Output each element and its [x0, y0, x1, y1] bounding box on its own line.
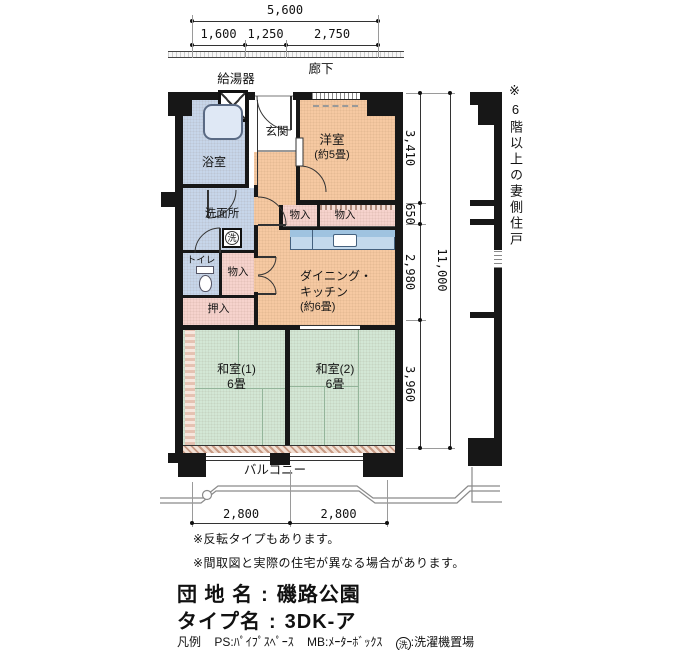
dim-line — [192, 21, 378, 22]
ext-line — [286, 40, 287, 58]
ext-line — [245, 40, 246, 58]
dim-dot — [418, 318, 422, 322]
neighbor-pillar-top-b — [478, 105, 502, 125]
dim-right-seg1: 3,410 — [403, 118, 417, 178]
pillar-bottom-right — [363, 453, 403, 477]
legend-line: 凡例 PS:ﾊﾟｲﾌﾟｽﾍﾟｰｽ MB:ﾒｰﾀｰﾎﾞｯｸｽ 洗:洗濯機置場 — [177, 633, 474, 650]
dim-top-seg2: 1,250 — [245, 27, 286, 41]
meter-box — [161, 192, 175, 207]
dim-line — [420, 93, 421, 448]
dim-dot — [448, 91, 452, 95]
balcony-railing-joint — [203, 491, 212, 500]
toilet-bowl — [199, 275, 212, 292]
corridor-label: 廊下 — [296, 62, 346, 78]
balcony-label: バルコニー — [225, 463, 325, 479]
neighbor-pillar-bottom — [468, 438, 502, 466]
neighbor-stub-3 — [470, 312, 494, 318]
legend-label: 凡例 — [177, 635, 201, 649]
bathroom-label: 浴室 — [185, 155, 243, 170]
balcony-railing-outer — [160, 486, 500, 498]
toilet-tank — [196, 266, 214, 274]
balcony-railing-inner — [160, 491, 500, 503]
dim-top-seg1: 1,600 — [192, 27, 245, 41]
kitchen-sink — [333, 234, 357, 247]
pillar-bottom-left — [178, 453, 206, 477]
window-track — [290, 456, 363, 457]
water-heater-label: 給湯器 — [212, 72, 260, 88]
entrance-threshold — [255, 95, 293, 97]
western-room-label: 洋室 (約5畳) — [297, 133, 367, 162]
japanese-room-1-label: 和室(1) 6畳 — [188, 362, 285, 392]
closet-west-right-label: 物入 — [325, 209, 365, 222]
wall-closet-divider — [317, 205, 320, 227]
gable-side-note: ※6階以上の妻側住戸 — [506, 84, 525, 248]
neighbor-stub-2 — [470, 219, 494, 225]
dim-dot — [418, 91, 422, 95]
western-room-window — [312, 92, 360, 100]
closet-hall-label: 物入 — [222, 266, 254, 279]
window-track — [206, 456, 270, 457]
ext-line — [192, 15, 193, 58]
legend-ps: PS:ﾊﾟｲﾌﾟｽﾍﾟｰｽ — [214, 635, 293, 649]
wall-bath-washroom — [183, 184, 249, 188]
wall-washroom-hall-upper — [254, 185, 258, 197]
ext-line — [406, 320, 426, 321]
type-name-line: タイプ名:3DK-ア — [177, 605, 356, 634]
washer-circle-icon: 洗 — [396, 637, 411, 650]
dim-right-seg3: 2,980 — [403, 242, 417, 302]
window-track — [290, 460, 363, 461]
colon: : — [269, 611, 277, 633]
wall-entrance-west-line — [257, 100, 258, 185]
neighbor-stub-1 — [470, 200, 494, 206]
legend-washer: 洗:洗濯機置場 — [396, 635, 474, 649]
dim-right-seg4: 3,960 — [403, 354, 417, 414]
legend-mb: MB:ﾒｰﾀｰﾎﾞｯｸｽ — [307, 635, 382, 649]
balcony-window-band — [183, 445, 395, 453]
legend-washer-text: :洗濯機置場 — [411, 635, 474, 649]
dim-top-seg3: 2,750 — [286, 27, 378, 41]
japanese-room-2-label: 和室(2) 6畳 — [285, 362, 385, 392]
dim-line — [450, 93, 451, 448]
reverse-type-note: ※反転タイプもあります。 — [193, 530, 340, 547]
washroom-label: 洗面所 — [190, 207, 254, 221]
kitchen-counter-divider — [312, 230, 313, 250]
disclaimer-note: ※間取図と実際の住宅が異なる場合があります。 — [193, 554, 465, 571]
wall-left — [175, 92, 183, 453]
washer-space-box: 洗 — [222, 228, 242, 248]
wall-dk-tatami-b — [360, 325, 395, 330]
dim-right-total: 11,000 — [435, 235, 449, 305]
wall-top-b — [293, 92, 312, 100]
dim-dot — [190, 521, 194, 525]
wall-toilet-oshiire — [183, 295, 254, 298]
entrance-label: 玄関 — [258, 125, 296, 139]
oshiire-label: 押入 — [183, 303, 254, 317]
dim-dot — [385, 521, 389, 525]
type-label: タイプ名 — [177, 611, 261, 633]
dim-dot — [418, 446, 422, 450]
dining-kitchen-label: ダイニング・ キッチン (約6畳) — [300, 269, 410, 314]
neighbor-wall — [494, 92, 502, 460]
dim-dot — [418, 201, 422, 205]
estate-name-line: 団 地 名:磯路公園 — [177, 578, 361, 607]
ext-line — [378, 15, 379, 58]
neighbor-balcony-outline — [472, 467, 502, 502]
wall-washroom-hall-lower — [254, 225, 258, 253]
estate-label: 団 地 名 — [177, 584, 253, 606]
dim-bottom-seg1: 2,800 — [192, 507, 290, 521]
dim-top-total: 5,600 — [192, 3, 378, 17]
closet-west-left-label: 物入 — [283, 209, 317, 222]
wall-western-closets — [300, 200, 395, 205]
washer-space-mark: 洗 — [225, 231, 239, 245]
tatami-line — [324, 386, 325, 445]
neighbor-pillar-top-a — [470, 92, 502, 105]
bathtub — [203, 104, 243, 140]
wall-closet-east-upper — [254, 253, 258, 258]
dim-dot — [448, 446, 452, 450]
dk-tatami-sliding-door — [300, 325, 360, 330]
tatami-line — [262, 388, 263, 445]
dim-bottom-seg2: 2,800 — [290, 507, 387, 521]
estate-name: 磯路公園 — [277, 584, 361, 606]
dim-right-seg2: 650 — [403, 194, 417, 234]
window-track — [206, 460, 270, 461]
wall-dk-tatami-a — [183, 325, 300, 330]
curtain-rail — [313, 105, 358, 107]
dim-dot — [418, 222, 422, 226]
floor-plan-page: 洗 廊下 給湯器 玄関 洋室 (約5畳) 浴室 洗面所 トイレ 物入 押入 物入 — [0, 0, 700, 650]
neighbor-window-slot — [494, 250, 502, 268]
type-name: 3DK-ア — [285, 611, 357, 633]
dim-dot — [288, 521, 292, 525]
wall-closet-east-lower — [254, 292, 258, 325]
ext-line — [387, 480, 388, 527]
toilet-label: トイレ — [183, 255, 219, 267]
colon: : — [261, 584, 269, 606]
